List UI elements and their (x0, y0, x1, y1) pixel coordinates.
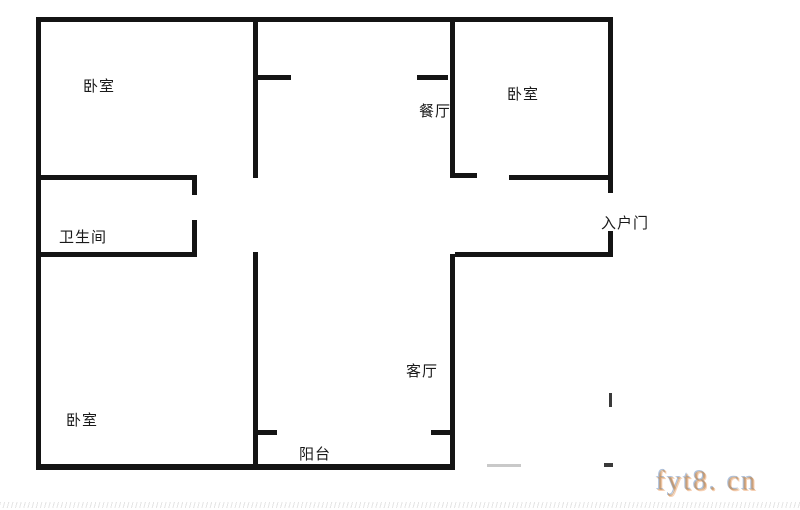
wall-fragment-faint-line (487, 464, 521, 467)
room-label-bathroom: 卫生间 (59, 229, 107, 246)
room-label-living: 客厅 (406, 363, 438, 380)
wall-right-vertical-lower (450, 254, 455, 468)
watermark-fyt8: fyt8. cn (656, 466, 758, 498)
scan-texture-strip (0, 502, 800, 508)
wall-exterior-right-upper (608, 17, 613, 193)
wall-balcony-stub-left (256, 430, 277, 435)
wall-exterior-bottom (36, 464, 455, 470)
room-label-bedroom-top-left: 卧室 (83, 78, 115, 95)
room-label-bedroom-top-right: 卧室 (507, 86, 539, 103)
floor-plan: 卧室 餐厅 卧室 卫生间 入户门 客厅 卧室 阳台 fyt8. cn (0, 0, 800, 510)
wall-fragment-right-corner (604, 463, 613, 467)
wall-right-vertical-upper (450, 17, 455, 178)
room-label-bedroom-bottom-left: 卧室 (66, 412, 98, 429)
room-label-dining: 餐厅 (419, 103, 451, 120)
wall-entry-bottom (455, 252, 613, 257)
wall-fragment-right-tick (609, 393, 612, 407)
wall-center-vertical-lower (253, 252, 258, 468)
wall-exterior-left (36, 17, 41, 469)
wall-dining-stub-left (256, 75, 291, 80)
wall-balcony-stub-right (431, 430, 453, 435)
wall-bedroom1-bottom (36, 175, 197, 180)
wall-exterior-top (36, 17, 613, 22)
wall-bedroom3-bottom (509, 175, 613, 180)
wall-dining-stub-right (417, 75, 448, 80)
room-label-entry-door: 入户门 (601, 215, 649, 232)
room-label-balcony: 阳台 (299, 446, 331, 463)
wall-bedroom3-stub-left (452, 173, 477, 178)
wall-center-vertical-upper (253, 17, 258, 178)
wall-bathroom-bottom (36, 252, 197, 257)
